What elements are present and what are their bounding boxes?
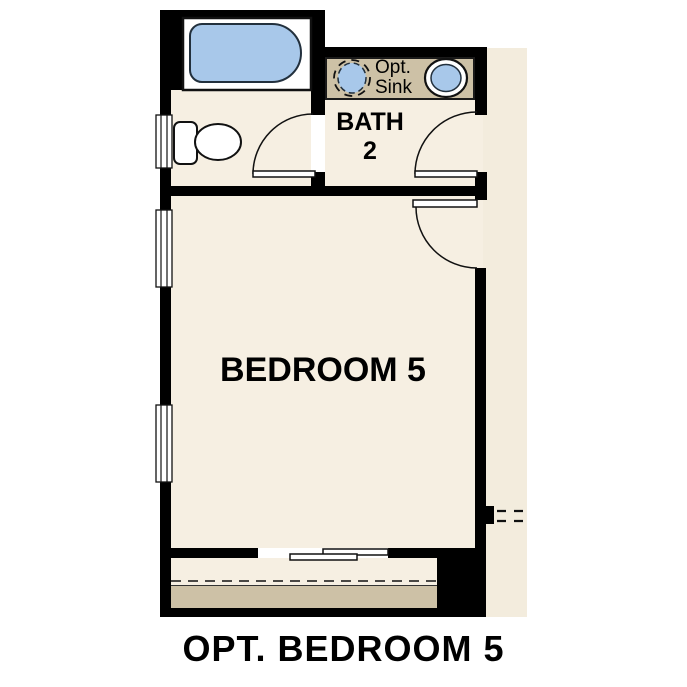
window-icon [156,210,172,287]
linework-layer [0,0,687,687]
optional-sink-label-line1: Opt. [375,58,435,78]
window-icon [156,405,172,482]
door-swing [253,114,315,177]
bathtub-icon [183,18,311,90]
optional-sink-label: Opt. Sink [375,58,435,98]
plan-caption: OPT. BEDROOM 5 [0,630,687,668]
bypass-closet-doors [290,549,388,560]
bath-room-name: BATH [315,108,425,137]
door-swing [413,200,477,268]
utility-dashed-lines [497,511,527,521]
toilet-icon [174,122,241,164]
optional-sink-icon [334,60,370,96]
bedroom-room-label: BEDROOM 5 [171,352,475,388]
bath-room-label: BATH 2 [315,108,425,166]
floor-plan: Opt. Sink BATH 2 BEDROOM 5 OPT. BEDROOM … [0,0,687,687]
window-icon [156,115,172,168]
optional-sink-label-line2: Sink [375,78,435,98]
bath-room-number: 2 [315,137,425,166]
